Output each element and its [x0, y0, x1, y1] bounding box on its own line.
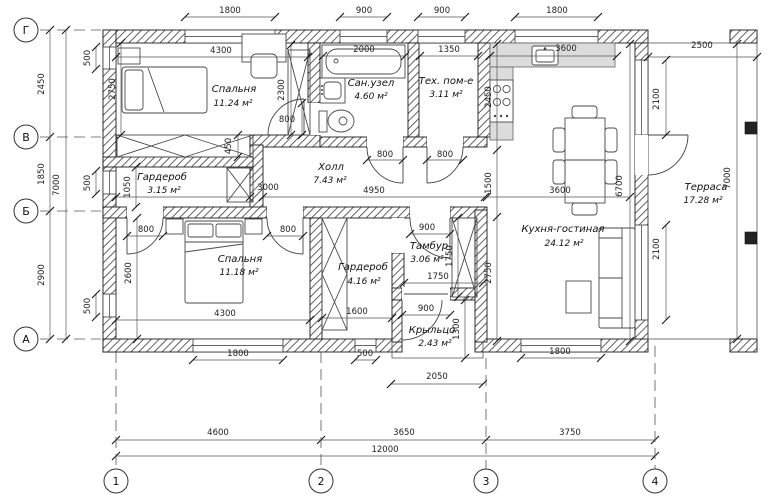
opening-wardrobe2-vestibule: [392, 218, 404, 253]
axis-col-1: 1: [104, 469, 128, 493]
dim-wardrobe1-w: 1050: [123, 176, 133, 198]
svg-text:24.12 м²: 24.12 м²: [544, 239, 583, 249]
dim-door-bath: 800: [377, 150, 393, 160]
desk-icon: [242, 34, 286, 78]
dim-top-win-tech: 900: [434, 6, 450, 16]
dim-win-left-1: 500: [83, 50, 93, 66]
axis-col-3: 3: [474, 469, 498, 493]
window-terrace-1: [635, 60, 648, 135]
terrace-post-bottomright: [730, 339, 757, 352]
wall-v-seg2: [320, 137, 367, 147]
svg-text:11.18 м²: 11.18 м²: [219, 268, 258, 278]
window-tech-top: [418, 30, 465, 43]
wall-b-seg2: [163, 207, 267, 218]
dim-vest-w: 1750: [427, 272, 449, 282]
coffee-table-icon: [566, 281, 591, 313]
axis-row-b-label: Б: [22, 205, 30, 218]
svg-text:7.43 м²: 7.43 м²: [313, 176, 347, 186]
sink-icon: [320, 78, 345, 103]
dim-top-win-bath: 900: [356, 6, 372, 16]
window-kitchen-top: [515, 30, 598, 43]
svg-text:11.24 м²: 11.24 м²: [213, 99, 252, 109]
axis-row-b: Б: [14, 199, 38, 223]
terrace-post-topright: [730, 30, 757, 43]
room-label-hall: Холл 7.43 м²: [313, 162, 347, 186]
dim-win-terr-2: 2100: [652, 238, 662, 260]
axis-row-a: А: [14, 327, 38, 351]
dim-door-porch: 900: [418, 304, 434, 314]
dim-living-len: 6700: [615, 175, 625, 197]
dim-wardrobe-b1-d: 450: [224, 138, 234, 154]
dim-row-v-b: 1850: [37, 163, 47, 185]
nightstand-right-icon: [245, 219, 262, 234]
wall-v-seg3: [403, 137, 427, 147]
svg-text:Гардероб: Гардероб: [137, 171, 187, 183]
dim-wardrobe-b1-h: 2300: [277, 79, 287, 101]
svg-text:Спальня: Спальня: [218, 254, 263, 265]
svg-text:Спальня: Спальня: [212, 84, 257, 95]
nightstand-left-icon: [166, 219, 183, 234]
wall-b-seg3: [303, 207, 410, 218]
dim-bathtub: 2000: [353, 45, 375, 55]
axis-row-g: Г: [14, 18, 38, 42]
axis-col-4-label: 4: [652, 475, 659, 488]
svg-text:Терраса: Терраса: [685, 182, 728, 193]
wall-vest-south1: [392, 288, 402, 300]
dim-porch-w: 2050: [426, 372, 448, 382]
dim-bedroom1-width: 4300: [210, 46, 232, 56]
svg-text:Кухня-гостиная: Кухня-гостиная: [522, 224, 605, 235]
dim-kit-zone: 2450: [484, 86, 494, 108]
dim-door-b2-right: 800: [280, 225, 296, 235]
room-label-porch: Крыльцо 2.43 м²: [409, 325, 456, 349]
dim-tech-width: 1350: [438, 45, 460, 55]
dim-span-2-3: 3650: [393, 428, 415, 438]
svg-text:Тех. пом-е: Тех. пом-е: [419, 76, 474, 87]
sofa-icon: [599, 228, 635, 328]
svg-text:Сан.узел: Сан.узел: [348, 78, 395, 89]
axis-col-4: 4: [643, 469, 667, 493]
closet-vestibule-icon: [452, 218, 477, 297]
kitchen-sink-icon: [532, 46, 558, 65]
room-label-terrace: Терраса 17.28 м²: [683, 182, 727, 206]
room-label-tech: Тех. пом-е 3.11 м²: [419, 76, 474, 100]
dim-top-win-bedroom1: 1800: [219, 6, 241, 16]
dim-row-g-v: 2450: [37, 73, 47, 95]
wall-bath-tech: [408, 43, 419, 137]
door-terrace: [635, 135, 688, 175]
dim-win-left-2: 500: [83, 175, 93, 191]
dim-row-b-a: 2900: [37, 264, 47, 286]
room-label-kitchen: Кухня-гостиная 24.12 м²: [522, 224, 605, 249]
dim-wardrobe1-len: 3000: [257, 183, 279, 193]
axis-row-a-label: А: [22, 333, 30, 346]
svg-text:3.06 м²: 3.06 м²: [410, 255, 444, 265]
axis-row-g-label: Г: [23, 24, 30, 37]
dim-door-vest: 900: [419, 223, 435, 233]
room-label-wardrobe2: Гардероб 4.16 м²: [338, 261, 388, 287]
wall-b-seg1: [103, 207, 127, 218]
dim-rows-total: 7000: [52, 174, 62, 196]
svg-text:17.28 м²: 17.28 м²: [683, 196, 722, 206]
window-terrace-2: [635, 225, 648, 320]
svg-text:Холл: Холл: [317, 162, 344, 173]
svg-text:Гардероб: Гардероб: [338, 261, 388, 273]
dim-hall-length: 4950: [363, 186, 385, 196]
dim-bedroom1-depth: 2750: [108, 78, 118, 100]
dim-span-1-2: 4600: [207, 428, 229, 438]
dining-table-icon: [553, 106, 617, 215]
room-label-bathroom: Сан.узел 4.60 м²: [348, 78, 395, 102]
room-label-bedroom1: Спальня 11.24 м²: [212, 84, 257, 109]
axis-col-2: 2: [309, 469, 333, 493]
window-bath-top: [340, 30, 387, 43]
terrace-column-2: [745, 232, 757, 244]
svg-text:Тамбур: Тамбур: [410, 240, 448, 252]
dim-door-bedroom1: 800: [279, 115, 295, 125]
dim-win-terr-1: 2100: [652, 88, 662, 110]
dim-wardrobe2-len: 1600: [346, 307, 368, 317]
dim-span-3-4: 3750: [559, 428, 581, 438]
svg-text:3.11 м²: 3.11 м²: [429, 90, 463, 100]
floor-plan: 1800 900 900 1800 4300 2000 1350 3600 25…: [0, 0, 777, 502]
dim-win-living: 1800: [549, 347, 571, 357]
svg-text:4.60 м²: 4.60 м²: [354, 92, 388, 102]
axis-col-2-label: 2: [318, 475, 325, 488]
dim-door-b2-left: 800: [138, 225, 154, 235]
dim-kitchen-counter: 3600: [555, 44, 577, 54]
wall-v-seg4: [463, 137, 487, 147]
axis-col-1-label: 1: [113, 475, 120, 488]
dim-dining-w: 3600: [549, 186, 571, 196]
window-left-3: [103, 294, 116, 317]
axis-row-v-label: В: [22, 131, 30, 144]
window-left-1: [103, 47, 116, 69]
wall-bed2-east: [310, 218, 322, 339]
single-bed-icon: [122, 67, 207, 113]
dim-span-total: 12000: [371, 445, 398, 455]
svg-text:Крыльцо: Крыльцо: [409, 325, 456, 336]
axis-row-v: В: [14, 125, 38, 149]
terrace-column-1: [745, 122, 757, 134]
wall-wardrobe1-top: [103, 157, 253, 167]
dim-bedroom2-width: 4300: [214, 309, 236, 319]
wall-porch-west: [392, 300, 402, 342]
dim-mid-zone: 1500: [484, 172, 494, 194]
axis-col-3-label: 3: [483, 475, 490, 488]
svg-text:4.16 м²: 4.16 м²: [347, 277, 381, 287]
dim-bedroom2-depth: 2600: [124, 262, 134, 284]
dim-top-win-kitchen: 1800: [546, 6, 568, 16]
dim-door-tech: 800: [437, 150, 453, 160]
dim-terrace-width: 2500: [691, 41, 713, 51]
room-label-wardrobe1: Гардероб 3.15 м²: [137, 171, 187, 196]
svg-text:3.15 м²: 3.15 м²: [147, 186, 181, 196]
dim-win-bedroom2: 1800: [227, 349, 249, 359]
dim-win-left-3: 500: [83, 298, 93, 314]
dim-win-small: 500: [357, 349, 373, 359]
closet-wardrobe2-icon: [322, 218, 347, 330]
toilet-icon: [319, 110, 354, 132]
window-left-2: [103, 171, 116, 194]
svg-text:2.43 м²: 2.43 м²: [418, 339, 452, 349]
